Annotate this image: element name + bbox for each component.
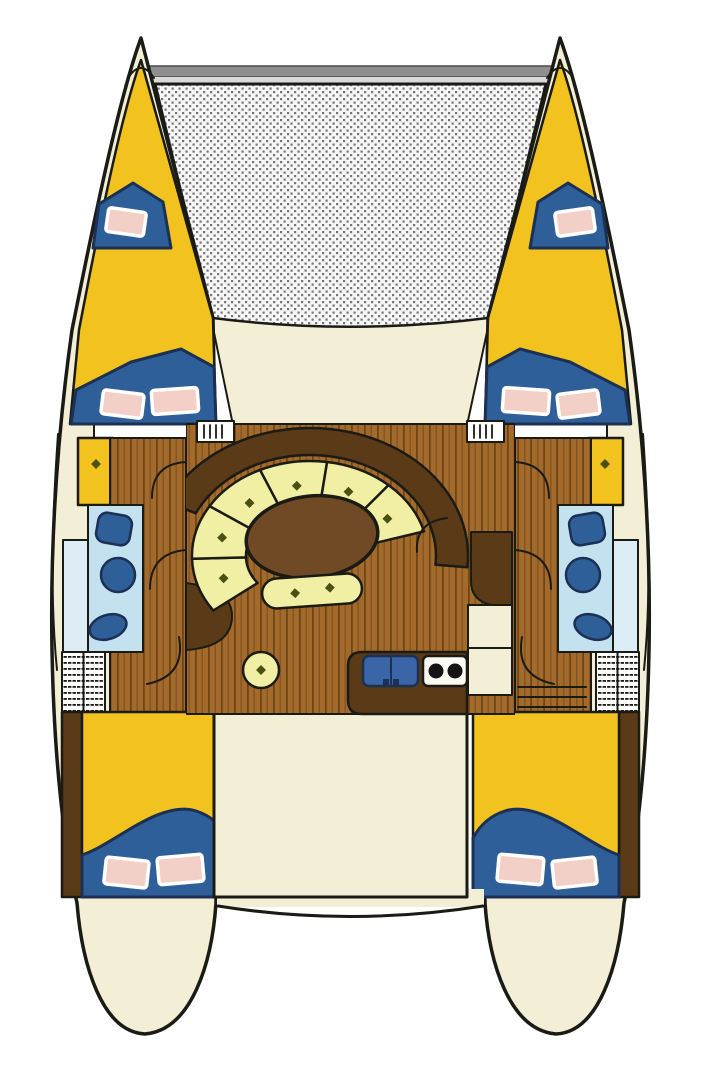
port-companionway-steps	[197, 421, 234, 442]
foredeck	[211, 318, 490, 430]
crossbeam-bar	[149, 66, 552, 77]
catamaran-deck-plan	[0, 0, 701, 1080]
trampoline	[155, 84, 546, 327]
forward-crossbeam	[149, 66, 552, 85]
deck-plan-canvas	[0, 0, 701, 1080]
sink-tap	[393, 679, 399, 685]
salon-stool	[243, 652, 279, 688]
starboard-companionway-steps	[467, 421, 504, 442]
galley-sink	[363, 656, 418, 686]
cockpit	[214, 695, 467, 897]
salon-bench	[261, 573, 363, 610]
stove-burner	[429, 664, 444, 679]
nav-cabinet	[471, 532, 512, 605]
galley-counter-lower	[468, 648, 512, 695]
galley-stove	[423, 656, 467, 686]
salon	[167, 424, 515, 714]
sink-tap	[383, 679, 389, 685]
plan-root	[0, 0, 701, 1080]
stove-burner	[448, 664, 463, 679]
bench-cushion	[261, 573, 363, 610]
galley-counter-upper	[468, 605, 512, 648]
